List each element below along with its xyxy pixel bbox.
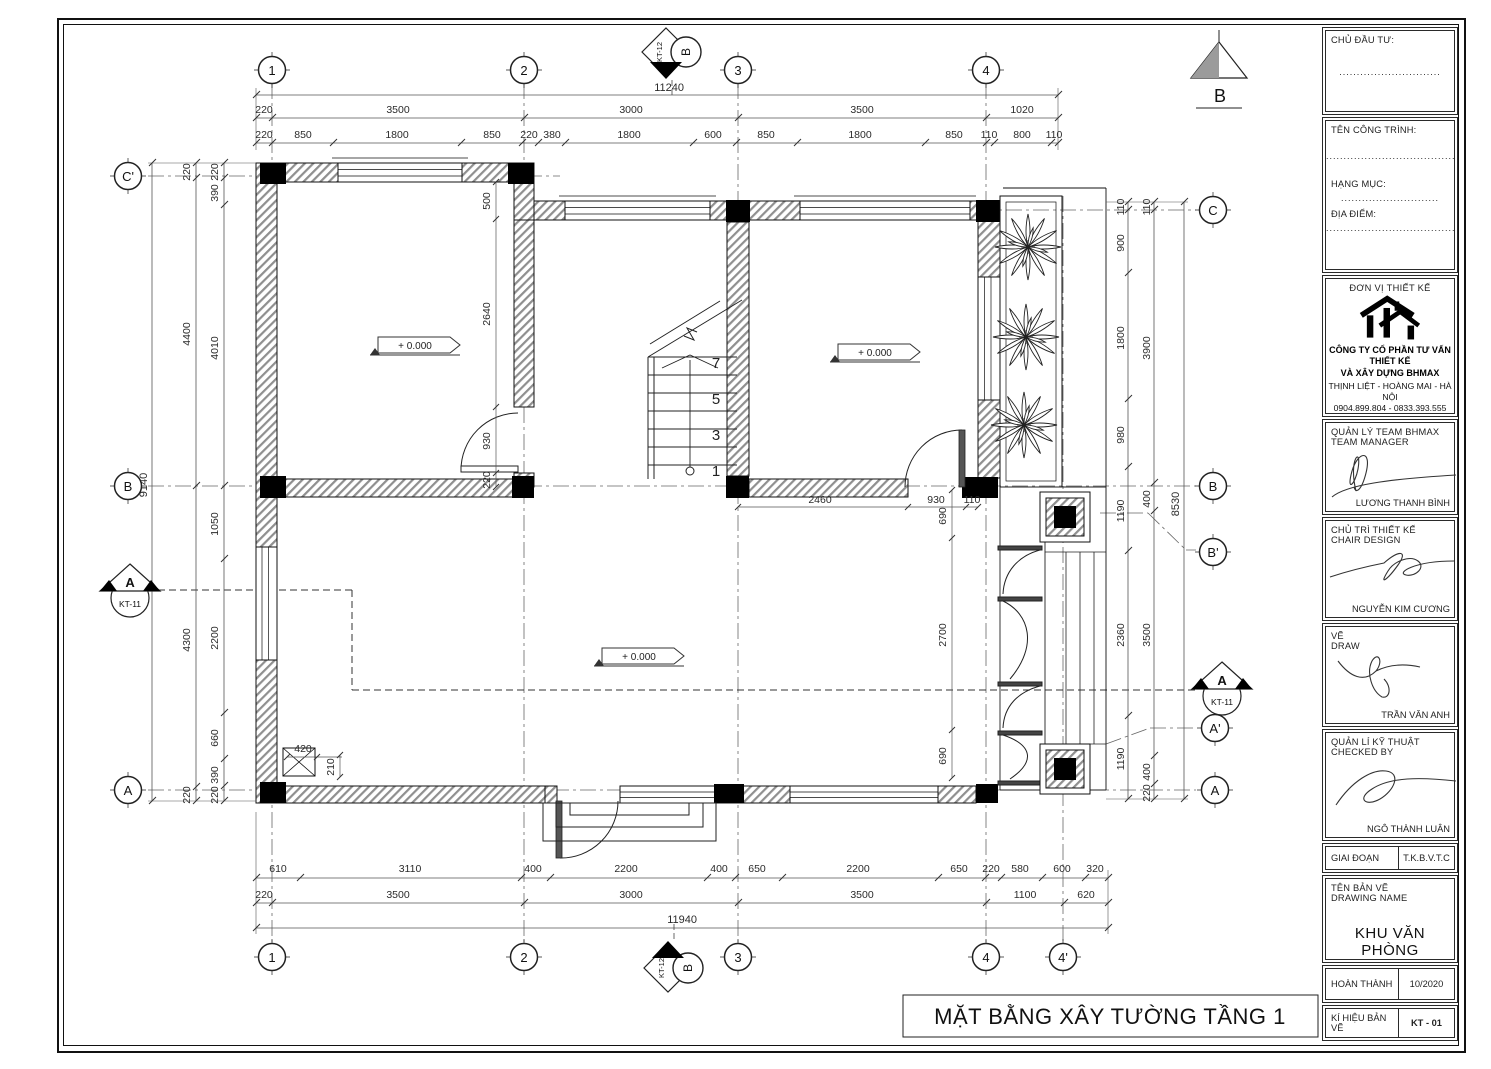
role-box-draw: VẼ DRAW TRẦN VĂN ANH (1322, 623, 1458, 727)
dim-label: 220 (982, 863, 1000, 875)
stage-label: GIAI ĐOẠN (1326, 847, 1399, 869)
svg-text:B: B (1214, 86, 1226, 106)
dim-label: 110 (1115, 198, 1127, 215)
project-box: TÊN CÔNG TRÌNH: ........................… (1322, 117, 1458, 273)
stair-num-5: 5 (712, 391, 720, 408)
dim-label: 650 (950, 863, 968, 875)
section-marker-a-left: A KT-11 (100, 564, 160, 617)
dim-label: 220 (209, 163, 221, 181)
completed-label: HOÀN THÀNH (1326, 969, 1399, 999)
svg-text:KT-11: KT-11 (1211, 697, 1233, 707)
investor-label: CHỦ ĐẦU TƯ: (1326, 31, 1454, 45)
dim-label: 220 (255, 104, 273, 116)
dim-label: 3500 (1141, 623, 1153, 647)
company-line2: VÀ XÂY DỰNG BHMAX (1326, 368, 1454, 379)
dim-label: 420 (294, 743, 312, 755)
dim-label: 690 (937, 747, 949, 765)
dim-label: 220 (520, 129, 538, 141)
role-label: CHỦ TRÌ THIẾT KẾ (1326, 521, 1454, 535)
company-address: THỊNH LIỆT - HOÀNG MAI - HÀ NỘI (1326, 381, 1454, 403)
code-box: KÍ HIỆU BẢN VẼ KT - 01 (1322, 1005, 1458, 1041)
role-name: TRẦN VĂN ANH (1381, 710, 1450, 720)
dim-label: 850 (945, 129, 963, 141)
grid-bubble-label: C (1208, 203, 1217, 218)
signature (1328, 749, 1458, 815)
role-box-manager: QUẢN LÝ TEAM BHMAX TEAM MANAGER LƯƠNG TH… (1322, 419, 1458, 515)
dim-label: 110 (964, 494, 981, 506)
grid-bubble-label: C' (122, 169, 134, 184)
dim-label: 620 (1077, 889, 1095, 901)
dim-label: 220 (209, 786, 221, 804)
level-marker: + 0.000 (594, 648, 684, 666)
stair-num-1: 1 (712, 463, 720, 480)
drawing-name-label: TÊN BẢN VẼ (1326, 879, 1454, 893)
signature (1328, 439, 1458, 501)
role-name: NGUYỄN KIM CƯƠNG (1352, 604, 1450, 614)
svg-text:+ 0.000: + 0.000 (622, 652, 656, 663)
project-label: TÊN CÔNG TRÌNH: (1326, 121, 1454, 135)
drawing-name-value: KHU VĂN PHÒNG (1326, 925, 1454, 959)
grid-bubble-label: 1 (268, 950, 275, 965)
dim-label: 11940 (667, 914, 697, 926)
porch-column (1040, 492, 1090, 542)
dim-label: 2640 (481, 302, 493, 326)
dim-label: 1800 (385, 129, 409, 141)
dim-label: 2200 (209, 626, 221, 650)
stage-box: GIAI ĐOẠN T.K.B.V.T.C (1322, 843, 1458, 873)
dim-label: 390 (209, 766, 221, 784)
role-label: QUẢN LÝ TEAM BHMAX (1326, 423, 1454, 437)
dim-label: 320 (1086, 863, 1104, 875)
dim-label: 850 (294, 129, 312, 141)
title-block: CHỦ ĐẦU TƯ: ............................… (1322, 27, 1458, 1041)
dim-label: 1800 (1115, 326, 1127, 350)
dim-label: 110 (981, 129, 998, 141)
level-marker: + 0.000 (830, 344, 920, 362)
grid-bubble-label: B (1209, 479, 1218, 494)
role-box-chair: CHỦ TRÌ THIẾT KẾ CHAIR DESIGN NGUYỄN KIM… (1322, 517, 1458, 621)
dim-label: 380 (543, 129, 561, 141)
svg-text:+ 0.000: + 0.000 (858, 348, 892, 359)
dim-label: 3110 (399, 863, 422, 875)
completed-box: HOÀN THÀNH 10/2020 (1322, 965, 1458, 1003)
svg-text:A: A (1217, 673, 1227, 688)
svg-text:+ 0.000: + 0.000 (398, 341, 432, 352)
dim-label: 110 (1046, 129, 1063, 141)
svg-text:A: A (125, 575, 135, 590)
walls (256, 163, 1000, 803)
drawing-title: MẶT BẰNG XÂY TƯỜNG TẦNG 1 (934, 1004, 1286, 1029)
dim-label: 110 (1141, 198, 1153, 215)
svg-text:B: B (679, 48, 693, 56)
entry-steps (543, 803, 716, 841)
dim-label: 850 (483, 129, 501, 141)
svg-text:KT-12: KT-12 (657, 958, 666, 978)
role-label: VẼ (1326, 627, 1454, 641)
dim-label: 400 (710, 863, 728, 875)
grid-bubble-label: B (124, 479, 133, 494)
grid-lines (148, 56, 1196, 942)
direction-arrow-b: B (1191, 30, 1247, 108)
dim-label: 210 (325, 758, 337, 776)
dims-top (253, 88, 1062, 150)
grid-bubble-label: 4 (982, 950, 989, 965)
dim-label: 1800 (848, 129, 872, 141)
grid-bubble-label: 3 (734, 63, 741, 78)
dim-label: 400 (1141, 763, 1153, 781)
code-label: KÍ HIỆU BẢN VẼ (1326, 1009, 1399, 1037)
role-name: NGÔ THÀNH LUÂN (1367, 824, 1450, 834)
dim-label: 3500 (386, 889, 410, 901)
category-label: HẠNG MỤC: (1326, 175, 1454, 189)
dim-label: 1190 (1115, 500, 1127, 523)
dim-label: 3000 (619, 104, 643, 116)
dim-label: 1020 (1010, 104, 1034, 116)
dim-label: 220 (1141, 784, 1153, 802)
section-marker-a-right: A KT-11 (1192, 662, 1252, 715)
stair-num-3: 3 (712, 427, 720, 444)
dim-label: 2200 (846, 863, 870, 875)
dim-label: 650 (748, 863, 766, 875)
dim-label: 8530 (1170, 492, 1182, 516)
dim-label: 3500 (386, 104, 410, 116)
dim-label: 2460 (808, 494, 832, 506)
dim-label: 220 (255, 889, 273, 901)
dim-label: 690 (937, 507, 949, 525)
drawing-name-label-en: DRAWING NAME (1326, 893, 1454, 903)
dim-label: 400 (524, 863, 542, 875)
dim-label: 220 (181, 786, 193, 804)
planter (1000, 188, 1106, 790)
dim-label: 930 (481, 432, 493, 450)
dim-label: 980 (1115, 426, 1127, 444)
designer-label: ĐƠN VỊ THIẾT KẾ (1326, 279, 1454, 293)
dim-label: 3500 (850, 889, 874, 901)
dim-label: 1050 (209, 512, 221, 536)
role-name: LƯƠNG THANH BÌNH (1356, 498, 1450, 508)
dim-label: 610 (269, 863, 287, 875)
dim-label: 3900 (1141, 336, 1153, 360)
category-value: ............................ (1326, 193, 1454, 203)
dim-label: 1800 (617, 129, 641, 141)
dim-label: 11240 (654, 82, 684, 94)
dim-label: 930 (927, 494, 945, 506)
dim-label: 400 (1141, 490, 1153, 508)
investor-value: ............................. (1326, 67, 1454, 77)
dims-left (148, 159, 256, 804)
stair-num-7: 7 (712, 355, 720, 372)
dim-label: 4300 (181, 628, 193, 652)
dim-label: 850 (757, 129, 775, 141)
section-marker-b-bottom: KT-12 B (644, 924, 703, 992)
dim-label: 2360 (1115, 623, 1127, 647)
dim-label: 580 (1011, 863, 1029, 875)
plant-icon (993, 304, 1059, 370)
dim-label: 660 (209, 729, 221, 747)
dim-label: 500 (481, 192, 493, 210)
svg-text:KT-12: KT-12 (655, 42, 664, 62)
plant-icon (991, 392, 1057, 458)
dim-label: 2700 (937, 623, 949, 647)
plant-icon (995, 214, 1061, 280)
level-marker: + 0.000 (370, 337, 460, 355)
grid-bubble-label: 4 (982, 63, 989, 78)
dim-label: 4400 (181, 322, 193, 346)
grid-bubble-label: 3 (734, 950, 741, 965)
dim-label: 800 (1013, 129, 1031, 141)
dim-label: 900 (1115, 234, 1127, 252)
signature (1328, 643, 1458, 705)
location-value: ........................................… (1326, 223, 1454, 233)
dim-label: 3000 (619, 889, 643, 901)
dim-label: 220 (481, 471, 493, 489)
svg-text:B: B (681, 964, 695, 972)
dim-label: 3500 (850, 104, 874, 116)
designer-box: ĐƠN VỊ THIẾT KẾ CÔNG TY CỔ PHẦN TƯ VẤN T… (1322, 275, 1458, 417)
bhmax-logo-icon (1359, 295, 1421, 345)
company-phone: 0904.899.804 - 0833.393.555 (1326, 403, 1454, 414)
signature (1328, 537, 1458, 597)
dim-label: 390 (209, 184, 221, 202)
investor-box: CHỦ ĐẦU TƯ: ............................… (1322, 27, 1458, 115)
dim-label: 4010 (209, 336, 221, 360)
grid-bubble-label: 2 (520, 63, 527, 78)
dim-label: 1100 (1014, 889, 1037, 901)
dim-label: 600 (1053, 863, 1071, 875)
role-label: QUẢN LÍ KỸ THUẬT (1326, 733, 1454, 747)
completed-value: 10/2020 (1399, 969, 1454, 999)
grid-bubble-label: B' (1207, 545, 1218, 560)
grid-bubble-label: 4' (1058, 950, 1068, 965)
location-label: ĐỊA ĐIỂM: (1326, 205, 1454, 219)
grid-bubble-label: A' (1209, 721, 1220, 736)
dim-label: 220 (255, 129, 273, 141)
svg-text:KT-11: KT-11 (119, 599, 141, 609)
drawing-sheet: { "sheet": { "title": "MẶT BẰNG XÂY TƯỜN… (0, 0, 1491, 1069)
dim-label: 600 (704, 129, 722, 141)
dim-label: 2200 (614, 863, 638, 875)
section-line-a (158, 590, 1196, 690)
porch-column (1040, 744, 1090, 794)
grid-bubble-label: A (124, 783, 133, 798)
code-value: KT - 01 (1399, 1009, 1454, 1037)
drawing-name-box: TÊN BẢN VẼ DRAWING NAME KHU VĂN PHÒNG (1322, 875, 1458, 963)
dim-label: 1190 (1115, 748, 1127, 771)
company-line1: CÔNG TY CỔ PHẦN TƯ VẤN THIẾT KẾ (1326, 345, 1454, 368)
grid-bubble-label: 2 (520, 950, 527, 965)
grid-bubble-label: A (1211, 783, 1220, 798)
grid-bubble-label: 1 (268, 63, 275, 78)
floor-plan-drawing: 7 5 3 1 (0, 0, 1320, 1069)
dim-label: 220 (181, 163, 193, 181)
stage-value: T.K.B.V.T.C (1399, 847, 1454, 869)
role-box-checked: QUẢN LÍ KỸ THUẬT CHECKED BY NGÔ THÀNH LU… (1322, 729, 1458, 841)
project-value: ...................................... (1326, 151, 1454, 161)
